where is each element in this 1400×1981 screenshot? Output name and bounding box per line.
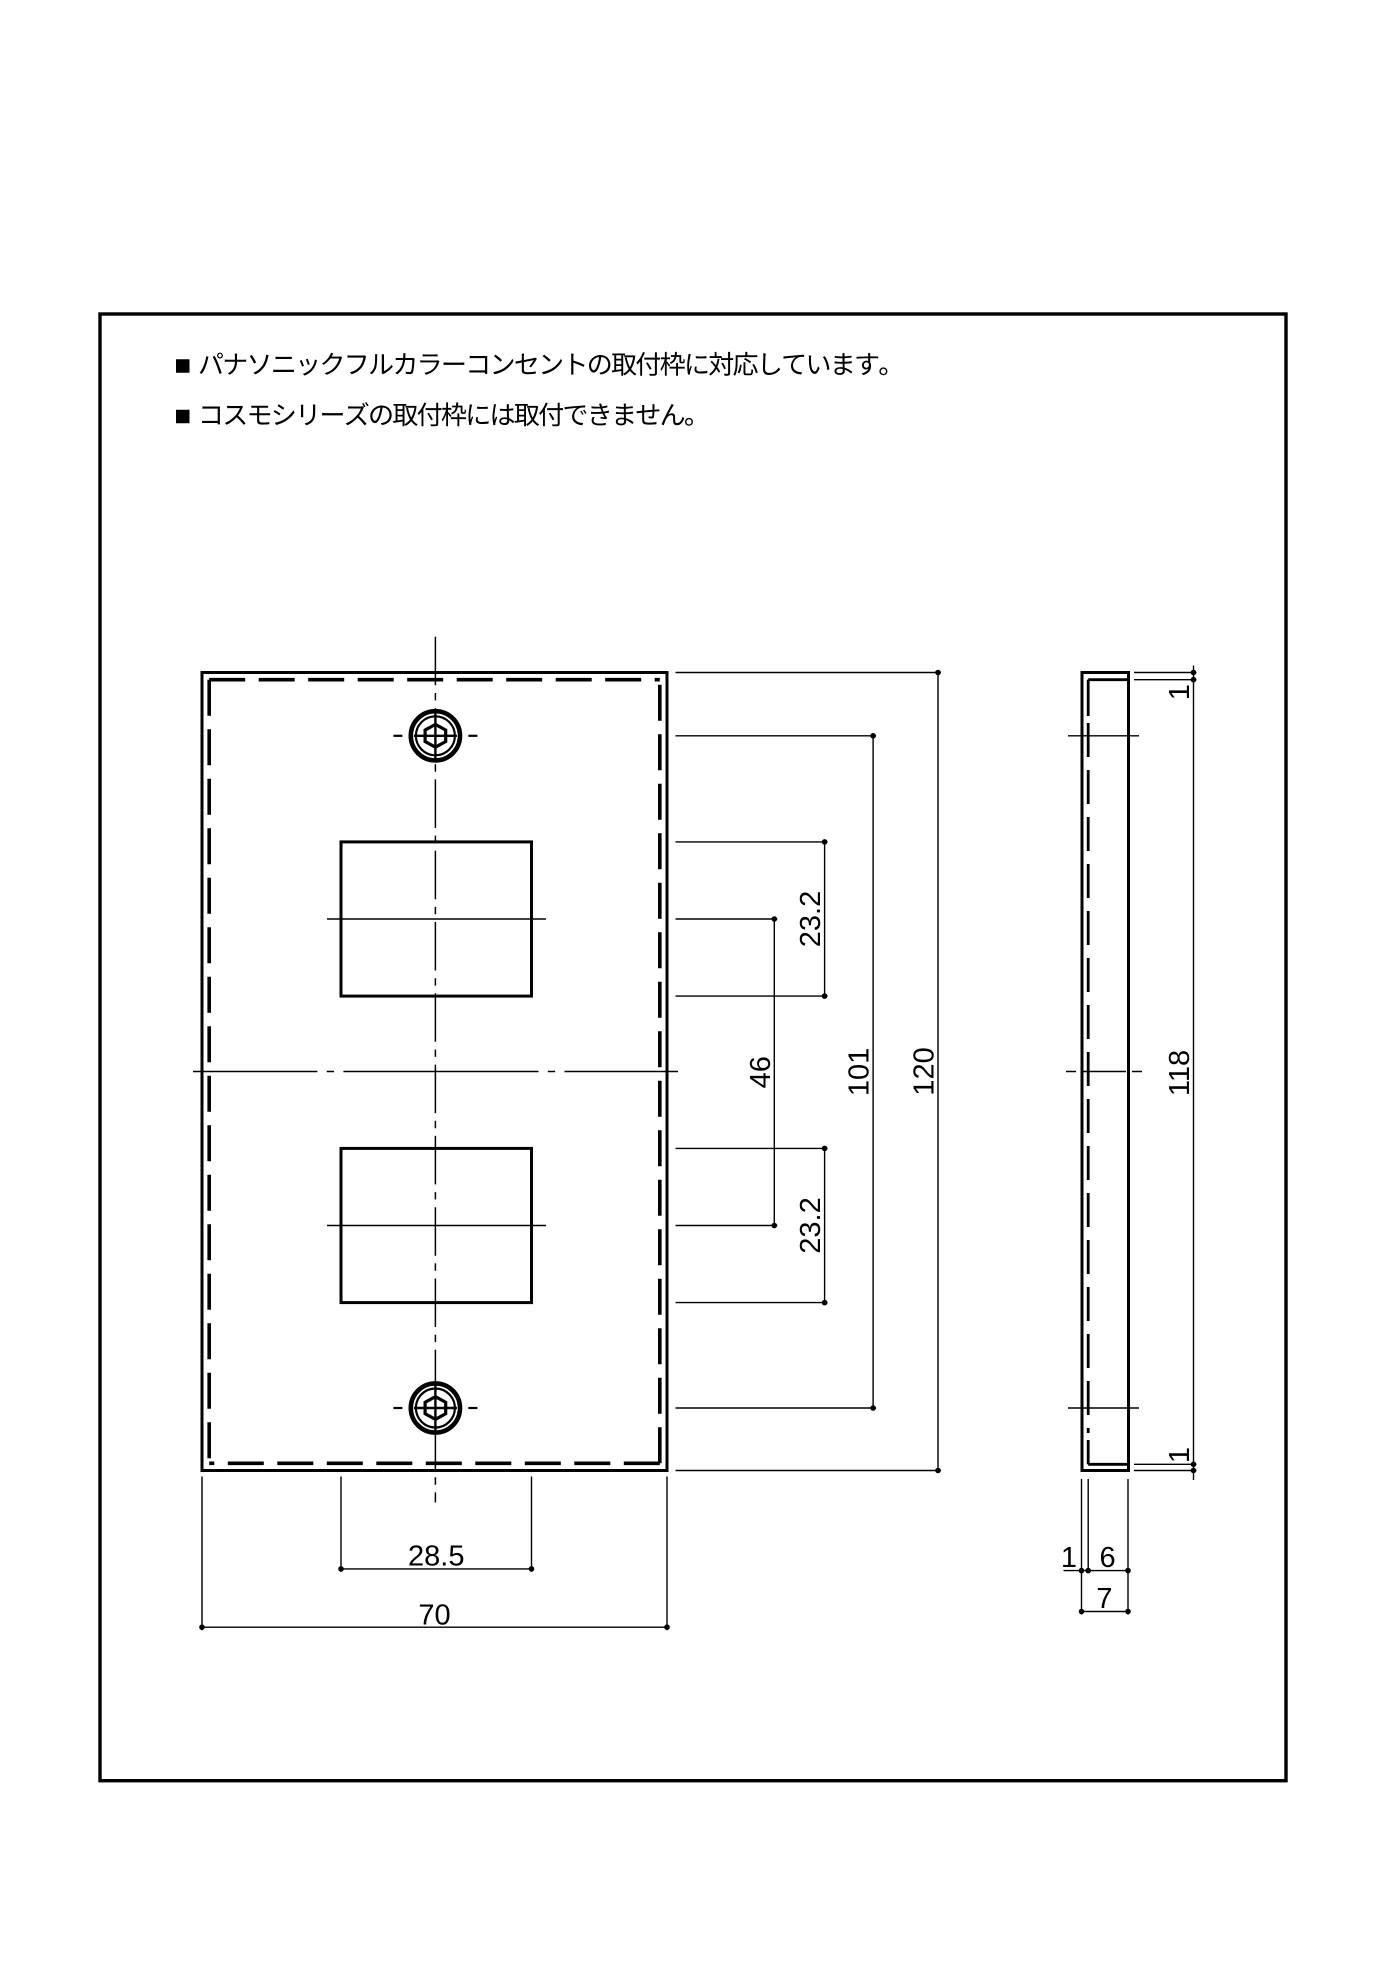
svg-text:120: 120: [909, 1047, 941, 1095]
svg-text:46: 46: [745, 1056, 777, 1088]
svg-text:28.5: 28.5: [408, 1541, 464, 1573]
svg-text:1: 1: [1164, 684, 1196, 700]
svg-text:70: 70: [418, 1599, 450, 1631]
svg-text:101: 101: [844, 1048, 876, 1096]
svg-text:7: 7: [1096, 1583, 1112, 1615]
svg-text:6: 6: [1100, 1542, 1116, 1574]
svg-text:118: 118: [1164, 1050, 1196, 1096]
svg-text:23.2: 23.2: [795, 1197, 827, 1253]
svg-text:1: 1: [1164, 1447, 1196, 1463]
svg-text:23.2: 23.2: [795, 891, 827, 947]
svg-text:1: 1: [1061, 1542, 1077, 1574]
